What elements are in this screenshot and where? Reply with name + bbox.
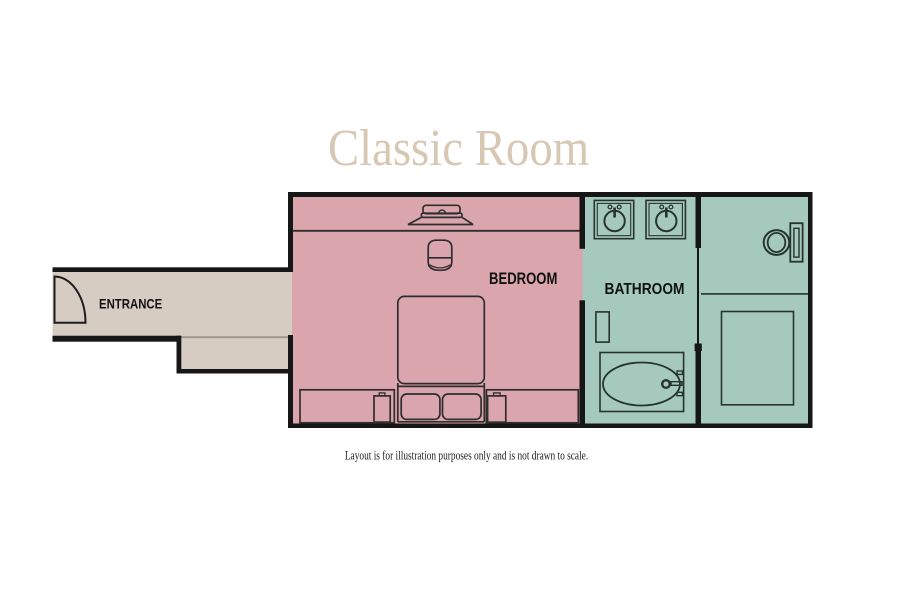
svg-text:Classic Room: Classic Room bbox=[328, 119, 589, 177]
svg-text:Layout is for illustration pur: Layout is for illustration purposes only… bbox=[345, 449, 589, 463]
svg-text:ENTRANCE: ENTRANCE bbox=[99, 296, 162, 311]
svg-text:BATHROOM: BATHROOM bbox=[605, 280, 685, 298]
svg-text:BEDROOM: BEDROOM bbox=[489, 270, 557, 289]
